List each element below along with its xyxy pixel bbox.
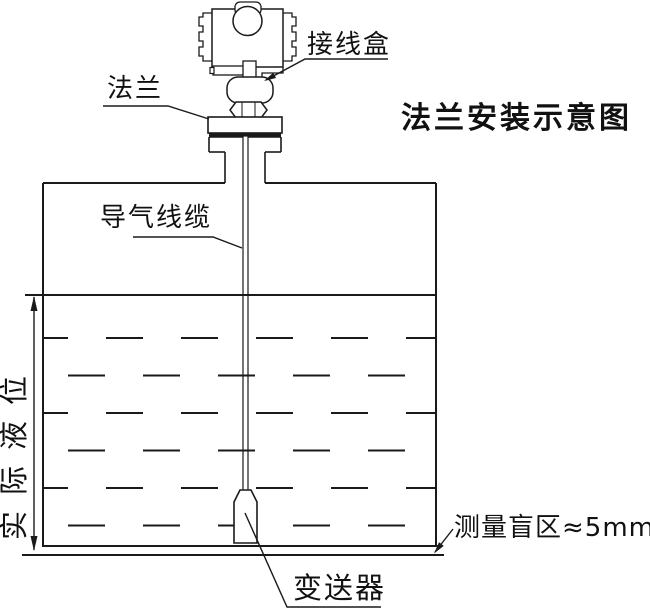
flange-label: 法兰 [107, 75, 163, 104]
diagram-canvas: 法兰安装示意图 接线盒 法兰 导气线缆 实际液位 测量盲区≈5mm 变送器 [0, 0, 650, 612]
tank-outline [22, 183, 444, 555]
transmitter-head-icon [199, 2, 296, 118]
liquid [25, 295, 437, 526]
head-sensor-bulb [227, 77, 273, 103]
flange-plate [208, 117, 282, 133]
head-conduit-plug [210, 68, 214, 74]
vent-cable-line [243, 136, 248, 492]
page-title: 法兰安装示意图 [401, 102, 632, 135]
head-conduit-bar [213, 66, 246, 75]
actual-level-label: 实际液位 [0, 350, 33, 550]
head-right-cap [282, 13, 296, 61]
hex-nut [230, 102, 267, 118]
head-top-cap [233, 7, 262, 36]
transmitter-label: 变送器 [293, 573, 386, 605]
junction-box-label: 接线盒 [307, 31, 391, 60]
vent-cable-leader-line [133, 237, 242, 248]
blind-zone-label: 测量盲区≈5mm [454, 514, 650, 543]
vent-cable-label: 导气线缆 [100, 204, 212, 233]
level-dimension-arrowhead-top [31, 296, 38, 311]
flange-leader-line [103, 106, 209, 119]
transmitter-probe [234, 490, 257, 543]
head-left-cap [199, 13, 213, 61]
junction-box-leader-line [266, 59, 388, 80]
